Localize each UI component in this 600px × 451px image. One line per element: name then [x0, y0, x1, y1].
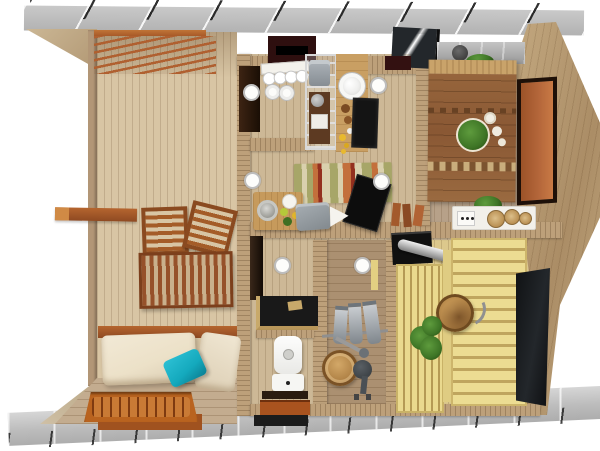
bed	[427, 60, 516, 203]
log-disc-shelf	[452, 206, 536, 230]
tray-lime	[280, 208, 288, 216]
tray-pot	[257, 200, 278, 221]
gray-cushion	[295, 202, 331, 231]
toilet-base	[272, 374, 304, 391]
toilet-drain-dot	[286, 381, 290, 385]
water-pump	[350, 348, 378, 402]
floor-slot-dark	[262, 391, 308, 399]
deck-drain-grate	[84, 392, 198, 422]
ceiling-light	[370, 77, 387, 94]
box-dots	[461, 217, 464, 220]
roof-overhang-northwest	[26, 29, 97, 69]
bed-headboard	[428, 60, 516, 75]
ceiling-light	[373, 173, 390, 190]
pump-top	[359, 348, 369, 358]
flush-button	[283, 349, 294, 360]
jar-brown	[344, 116, 352, 124]
towel-rail	[322, 300, 392, 346]
hanging-towel	[362, 300, 382, 345]
bed-seam-dashes	[428, 108, 516, 114]
coffee-grinder	[311, 94, 324, 107]
wood-disc	[487, 210, 505, 228]
ceiling-light	[243, 84, 260, 101]
wood-disc	[519, 212, 532, 225]
protruding-beam	[55, 207, 137, 221]
deck-table	[139, 251, 234, 309]
pergola-slats	[94, 36, 216, 74]
plate	[278, 84, 295, 101]
doormat-black	[254, 415, 308, 426]
bed-flower	[492, 126, 502, 136]
board	[402, 204, 412, 228]
tray-greens	[283, 217, 292, 226]
board	[391, 203, 401, 227]
deck-chair-left	[141, 206, 189, 256]
hanging-towel	[348, 303, 363, 345]
beam-end-cap	[55, 207, 69, 220]
ceiling-light	[354, 257, 371, 274]
stake-marks-north	[30, 0, 590, 23]
floor-plan-render	[0, 0, 600, 451]
shower-counter	[256, 296, 318, 330]
bed-plant	[458, 120, 488, 150]
ceiling-light	[244, 172, 261, 189]
whisk-leaves	[422, 316, 442, 336]
bedroom-door-orange	[517, 77, 557, 206]
bath-mat-sienna	[260, 400, 310, 415]
storage-box-white	[311, 114, 328, 129]
bed-flower	[484, 112, 496, 124]
ceiling-light	[274, 257, 291, 274]
skylight-frame-maroon	[385, 56, 411, 70]
dish-shelf	[261, 60, 312, 103]
cutting-boards	[392, 203, 424, 229]
toilet-tank	[274, 336, 302, 374]
whisk-leaves	[420, 336, 442, 360]
sauna-glass-door	[516, 268, 550, 406]
jar-brown	[341, 104, 350, 113]
soap-dish	[287, 300, 302, 311]
towel-stack-gray	[309, 60, 330, 86]
board	[413, 204, 425, 226]
sink-round	[338, 72, 366, 100]
grate-ridges	[92, 397, 190, 417]
hood-vent-black	[276, 46, 308, 55]
pump-feet	[354, 394, 359, 400]
pergola	[94, 30, 216, 74]
lemons	[339, 134, 346, 141]
wood-disc	[504, 209, 520, 225]
bed-tile-band	[428, 162, 516, 172]
pump-body	[360, 376, 368, 395]
bed-flower	[498, 138, 506, 146]
metal-rack	[305, 54, 337, 150]
induction-cooktop	[351, 98, 379, 149]
hall-closet-dark	[250, 236, 263, 300]
dotted-box	[457, 211, 475, 226]
bench-edge-glimpse	[371, 260, 378, 290]
birch-whisk	[410, 316, 454, 362]
